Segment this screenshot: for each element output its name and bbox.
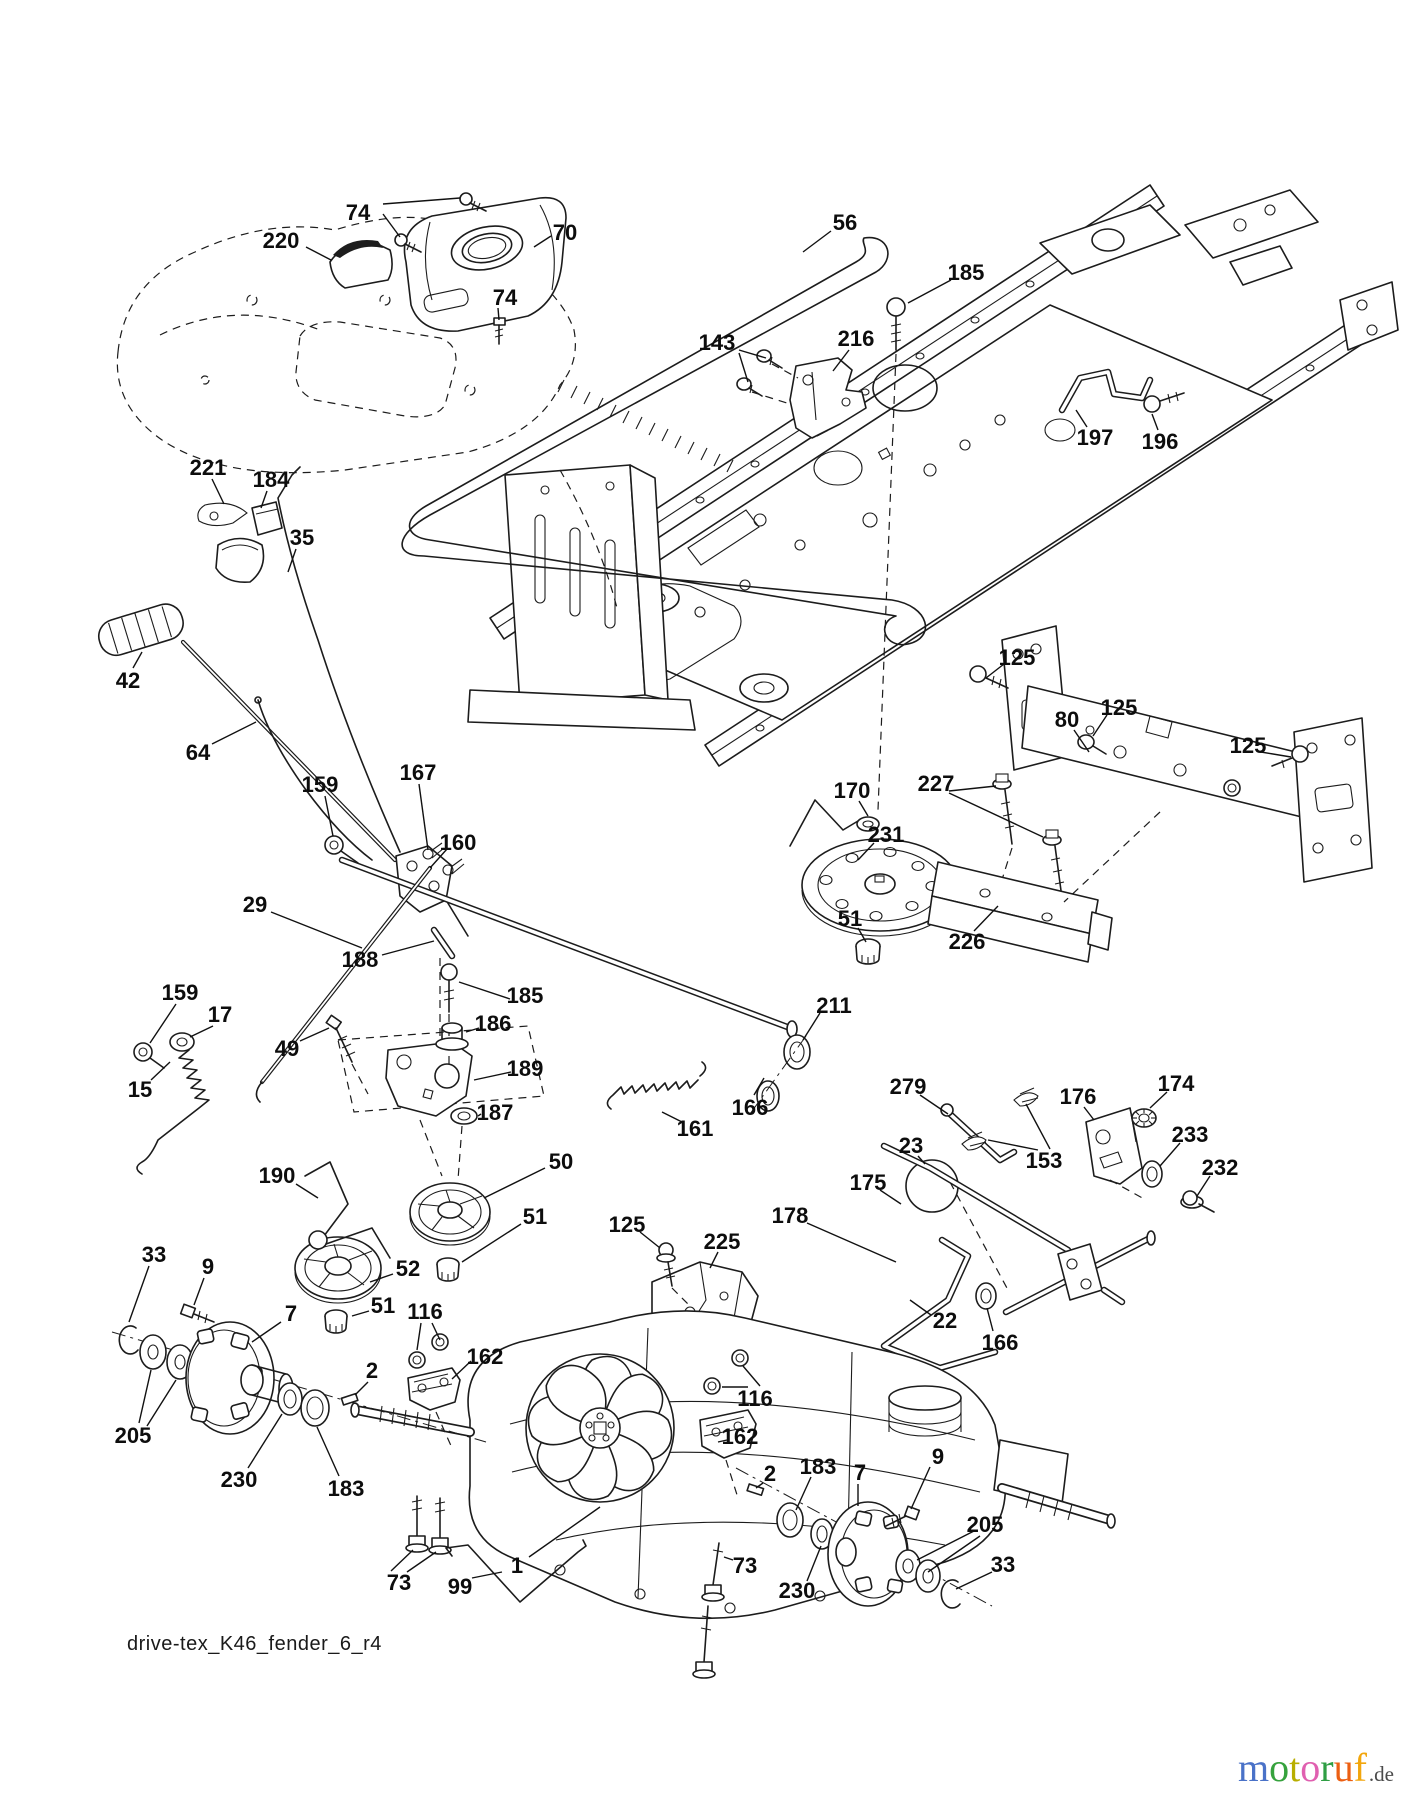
part-label-230-43: 230 (221, 1467, 258, 1492)
part-label-159-15: 159 (302, 772, 339, 797)
part-label-196-9: 196 (1142, 429, 1179, 454)
part-label-227-52: 227 (918, 771, 955, 796)
part-label-170-53: 170 (834, 778, 871, 803)
part-label-231-54: 231 (868, 822, 905, 847)
cooling-fan (526, 1354, 674, 1502)
part-label-188-19: 188 (342, 947, 379, 972)
part-label-99-46: 99 (448, 1574, 472, 1599)
bolts-73-left (406, 1496, 451, 1554)
leader-line-64-14 (212, 722, 256, 744)
grip-42 (95, 600, 188, 660)
washer-230-left (278, 1383, 302, 1415)
part-label-161-28: 161 (677, 1116, 714, 1141)
leader-line-116-36 (417, 1323, 421, 1350)
part-label-162-37: 162 (467, 1344, 504, 1369)
washers-205-left (140, 1335, 193, 1379)
part-label-73-45: 73 (387, 1570, 411, 1595)
part-label-125-48: 125 (999, 645, 1036, 670)
logo-letter-0: m (1238, 1745, 1269, 1790)
part-label-23-60: 23 (899, 1133, 923, 1158)
pad-220 (330, 240, 392, 288)
steering-shaft (183, 642, 395, 860)
part-label-159-25: 159 (162, 980, 199, 1005)
drawing-code: drive-tex_K46_fender_6_r4 (127, 1633, 382, 1656)
part-label-190-33: 190 (259, 1163, 296, 1188)
leader-line-73-45 (407, 1552, 436, 1572)
leader-line-220-1 (306, 247, 331, 260)
part-label-33-39: 33 (142, 1242, 166, 1267)
part-label-125-51: 125 (1230, 733, 1267, 758)
e-ring-33-left (119, 1326, 138, 1354)
leader-line-178-65 (807, 1223, 896, 1262)
bracket-162-left (408, 1368, 460, 1448)
leader-line-227-52 (949, 786, 996, 791)
part-label-42-13: 42 (116, 668, 140, 693)
bushing-186 (436, 1023, 468, 1050)
part-label-175-64: 175 (850, 1170, 887, 1195)
leader-line-51-35 (352, 1311, 369, 1316)
part-label-74-3: 74 (493, 285, 518, 310)
part-label-183-73: 183 (800, 1454, 837, 1479)
nut-51-under-52 (325, 1310, 347, 1333)
leader-line-2-38 (355, 1382, 368, 1395)
part-label-7-74: 7 (854, 1460, 866, 1485)
part-label-49-24: 49 (275, 1036, 299, 1061)
part-label-185-5: 185 (948, 260, 985, 285)
leader-line-190-33 (296, 1184, 318, 1198)
part-label-2-72: 2 (764, 1461, 776, 1486)
part-label-125-67: 125 (609, 1212, 646, 1237)
part-label-153-61: 153 (1026, 1148, 1063, 1173)
leader-line-73-45 (391, 1550, 413, 1571)
leader-line-17-26 (190, 1026, 213, 1037)
part-label-22-68: 22 (933, 1308, 957, 1333)
part-label-166-69: 166 (982, 1330, 1019, 1355)
lever-221 (198, 503, 247, 525)
part-label-51-35: 51 (371, 1293, 395, 1318)
motoruf-wordmark: motoruf (1238, 1745, 1367, 1790)
eyelet-link-159-lower (134, 1043, 164, 1068)
part-label-186-21: 186 (475, 1011, 512, 1036)
washer-166-right (976, 1283, 996, 1309)
frame-assembly (468, 185, 1398, 766)
pedal-shaft-and-pivot (1006, 1231, 1155, 1312)
part-label-64-14: 64 (186, 740, 211, 765)
part-label-184-11: 184 (253, 467, 290, 492)
part-label-17-26: 17 (208, 1002, 232, 1027)
part-label-178-65: 178 (772, 1203, 809, 1228)
leader-line-56-4 (803, 231, 831, 252)
bearing-183-left (301, 1390, 329, 1426)
logo-letter-4: r (1320, 1745, 1333, 1790)
part-label-1-47: 1 (511, 1553, 523, 1578)
part-label-52-34: 52 (396, 1256, 420, 1281)
bearing-183-right (777, 1503, 803, 1537)
leader-line-205-42 (147, 1380, 176, 1426)
clips-153 (962, 1088, 1038, 1150)
part-label-233-62: 233 (1172, 1122, 1209, 1147)
idler-pulley-50 (410, 1183, 490, 1245)
fender-trim-hatch (558, 380, 733, 472)
part-label-116-36: 116 (407, 1299, 443, 1324)
leader-line-188-19 (382, 941, 434, 955)
part-label-51-32: 51 (523, 1204, 547, 1229)
washer-233 (1142, 1161, 1162, 1187)
part-label-143-6: 143 (699, 330, 736, 355)
part-label-162-71: 162 (722, 1424, 759, 1449)
leader-line-167-16 (419, 784, 428, 850)
part-label-187-23: 187 (477, 1100, 514, 1125)
coupler-hub-7-left (186, 1322, 293, 1434)
part-label-189-22: 189 (507, 1056, 544, 1081)
part-label-9-75: 9 (932, 1444, 944, 1469)
washer-211 (784, 1035, 810, 1069)
washer-174 (1132, 1109, 1156, 1127)
dashed-176-232 (1110, 1180, 1146, 1200)
nut-51-under-231 (856, 939, 880, 964)
part-label-226-56: 226 (949, 929, 986, 954)
leader-line-183-44 (317, 1427, 339, 1476)
part-label-125-50: 125 (1101, 695, 1138, 720)
exploded-view-drawing: 7422070745618514321619719622118435426415… (0, 0, 1401, 1800)
part-label-56-4: 56 (833, 210, 857, 235)
nut-51-under-50 (437, 1258, 459, 1281)
bracket-189 (386, 1042, 472, 1116)
bolt-74-lower (494, 318, 505, 344)
cross-shaft (342, 860, 797, 1037)
washer-17 (170, 1033, 194, 1051)
part-label-15-27: 15 (128, 1077, 152, 1102)
logo-letter-1: o (1269, 1745, 1289, 1790)
part-label-51-55: 51 (838, 906, 862, 931)
part-label-9-40: 9 (202, 1254, 214, 1279)
part-label-166-30: 166 (732, 1095, 769, 1120)
bracket-80-group (928, 626, 1372, 962)
motoruf-domain-suffix: .de (1369, 1762, 1394, 1786)
leader-line-166-69 (987, 1308, 993, 1331)
part-label-232-63: 232 (1202, 1155, 1239, 1180)
part-label-205-42: 205 (115, 1423, 152, 1448)
part-label-216-7: 216 (838, 326, 875, 351)
part-label-2-38: 2 (366, 1358, 378, 1383)
bellcrank-cluster (396, 843, 468, 936)
part-label-225-66: 225 (704, 1229, 741, 1254)
dashed-link-189-50 (420, 1120, 442, 1176)
leader-line-227-52 (949, 793, 1043, 837)
part-label-70-2: 70 (553, 220, 577, 245)
logo-letter-5: u (1334, 1745, 1354, 1790)
logo-letter-3: o (1300, 1745, 1320, 1790)
motoruf-watermark: motoruf.de (1238, 1748, 1394, 1788)
leader-line-74-0 (383, 198, 460, 204)
leader-line-9-40 (194, 1278, 204, 1305)
bolt-9-left (181, 1304, 214, 1323)
part-label-230-78: 230 (779, 1578, 816, 1603)
leader-line-185-5 (908, 280, 951, 303)
leader-line-33-77 (956, 1572, 992, 1589)
logo-letter-2: t (1289, 1745, 1300, 1790)
part-label-221-10: 221 (190, 455, 227, 480)
leader-line-22-68 (910, 1300, 931, 1315)
bracket-216 (790, 358, 866, 438)
part-label-160-17: 160 (440, 830, 477, 855)
part-label-80-49: 80 (1055, 707, 1079, 732)
part-label-211-29: 211 (816, 993, 852, 1018)
part-label-29-18: 29 (243, 892, 267, 917)
lever-279 (941, 1104, 1014, 1160)
leader-line-42-13 (133, 652, 142, 668)
parts-diagram-page: 7422070745618514321619719622118435426415… (0, 0, 1401, 1800)
leader-line-29-18 (271, 912, 362, 948)
link-188 (434, 930, 452, 956)
part-label-33-77: 33 (991, 1552, 1015, 1577)
leader-line-185-20 (459, 982, 510, 999)
part-label-220-1: 220 (263, 228, 300, 253)
leader-line-221-10 (212, 479, 224, 504)
logo-letter-6: f (1354, 1745, 1367, 1790)
leader-line-205-42 (139, 1370, 151, 1423)
part-label-176-59: 176 (1060, 1084, 1097, 1109)
part-label-205-76: 205 (967, 1512, 1004, 1537)
nuts-116-left (409, 1334, 448, 1368)
part-label-185-20: 185 (507, 983, 544, 1008)
part-label-183-44: 183 (328, 1476, 365, 1501)
leader-line-33-39 (129, 1266, 149, 1322)
part-label-174-58: 174 (1158, 1071, 1195, 1096)
spring-161 (607, 1062, 705, 1109)
leader-line-189-22 (474, 1072, 511, 1080)
coupler-hub-7-right (828, 1502, 908, 1606)
screw-74-a (460, 193, 486, 211)
part-label-74-0: 74 (346, 200, 371, 225)
part-label-73-79: 73 (733, 1553, 757, 1578)
part-label-116-70: 116 (737, 1386, 773, 1411)
idler-pulley-52 (295, 1237, 381, 1303)
part-label-167-16: 167 (400, 760, 437, 785)
leader-line-170-53 (859, 801, 868, 816)
leader-line-50-31 (484, 1168, 545, 1198)
leader-line-153-61 (1026, 1104, 1050, 1149)
washer-187 (451, 1108, 477, 1180)
part-label-197-8: 197 (1077, 425, 1114, 450)
part-label-279-57: 279 (890, 1074, 927, 1099)
part-label-50-31: 50 (549, 1149, 573, 1174)
part-label-7-41: 7 (285, 1301, 297, 1326)
part-label-35-12: 35 (290, 525, 314, 550)
